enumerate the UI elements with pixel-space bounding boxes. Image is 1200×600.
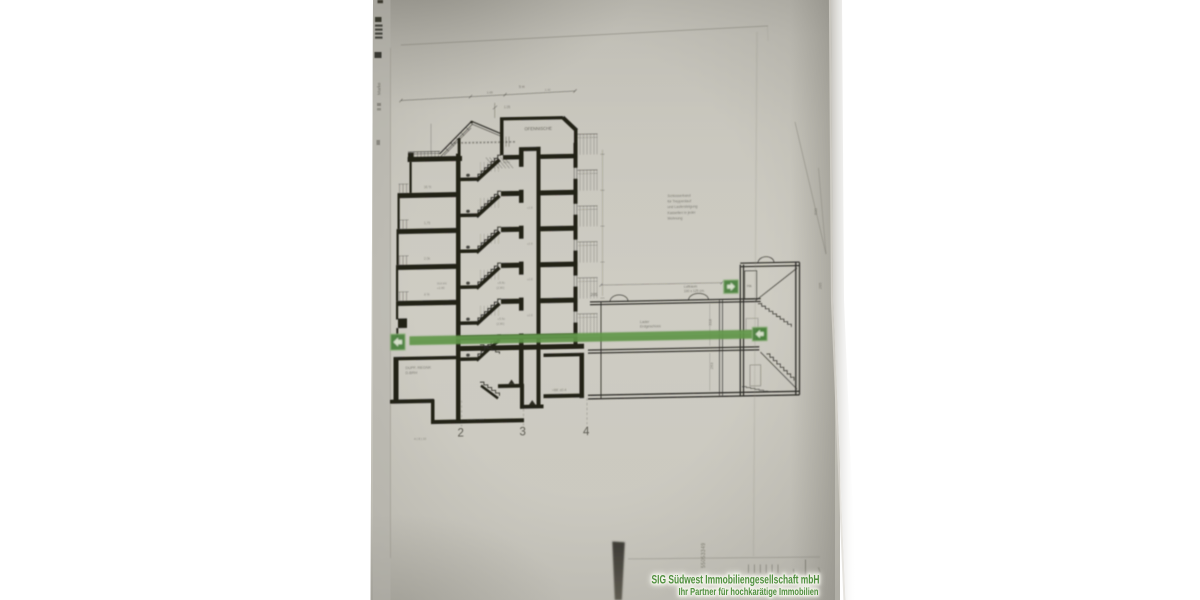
svg-text:265: 265 <box>819 283 823 289</box>
svg-text:Kassetten in jeder: Kassetten in jeder <box>668 210 697 215</box>
svg-text:600: 600 <box>813 208 818 215</box>
svg-text:Schlosserband: Schlosserband <box>668 194 691 198</box>
svg-text:OFENNISCHE: OFENNISCHE <box>525 126 553 132</box>
svg-text:und Laufersteigung: und Laufersteigung <box>668 205 698 210</box>
svg-text:1.40: 1.40 <box>545 88 551 92</box>
svg-text:Lader: Lader <box>640 320 650 324</box>
svg-text:DUPF. REGNK: DUPF. REGNK <box>405 366 431 370</box>
svg-text:Ihr Partner für hochkarätige I: Ihr Partner für hochkarätige Immobilien <box>679 586 819 598</box>
svg-text:SIG Südwest Immobiliengesellsc: SIG Südwest Immobiliengesellschaft mbH <box>652 575 820 587</box>
svg-text:1.05: 1.05 <box>504 105 510 109</box>
svg-text:2: 2 <box>457 428 463 440</box>
svg-text:+2.8: +2.8 <box>527 206 533 210</box>
svg-text:205: 205 <box>591 292 599 297</box>
svg-text:2.0k: 2.0k <box>424 257 430 261</box>
svg-text:D.BRH: D.BRH <box>405 371 417 375</box>
svg-text:+5.6x: +5.6x <box>498 317 506 321</box>
svg-text:+2.80: +2.80 <box>437 286 445 290</box>
svg-text:3: 3 <box>520 426 526 438</box>
svg-text:≈BK ±0.4: ≈BK ±0.4 <box>552 388 566 392</box>
svg-text:+2.8: +2.8 <box>527 241 533 245</box>
svg-text:310 kN: 310 kN <box>437 281 447 285</box>
svg-text:Ha: Ha <box>747 284 751 288</box>
svg-text:5 m: 5 m <box>519 85 525 89</box>
svg-text:+8.8x: +8.8x <box>498 281 506 285</box>
svg-text:+2.8: +2.8 <box>527 313 533 317</box>
svg-text:1,75: 1,75 <box>424 221 430 225</box>
svg-text:unterk. · nnn: unterk. · nnn <box>467 418 484 422</box>
svg-text:Wohnung: Wohnung <box>668 216 683 220</box>
svg-text:318: 318 <box>708 318 713 326</box>
svg-text:(2.80): (2.80) <box>497 286 505 290</box>
svg-text:36 %: 36 % <box>424 185 431 189</box>
svg-text:4·|·8·|·10: 4·|·8·|·10 <box>414 437 427 441</box>
svg-text:4 %: 4 % <box>424 293 430 297</box>
svg-text:+2.8: +2.8 <box>527 277 533 281</box>
svg-text:für Treppenlauf: für Treppenlauf <box>668 199 692 203</box>
svg-text:4: 4 <box>583 426 590 438</box>
svg-text:1.05: 1.05 <box>487 90 493 94</box>
svg-text:55053349: 55053349 <box>701 543 707 568</box>
svg-text:Marke: Marke <box>377 82 382 95</box>
svg-text:(2.80): (2.80) <box>497 322 505 326</box>
svg-text:Erdgeschoss: Erdgeschoss <box>640 324 661 328</box>
svg-text:100 x 125 cm.: 100 x 125 cm. <box>684 289 705 293</box>
svg-text:150%: 150% <box>503 160 511 164</box>
